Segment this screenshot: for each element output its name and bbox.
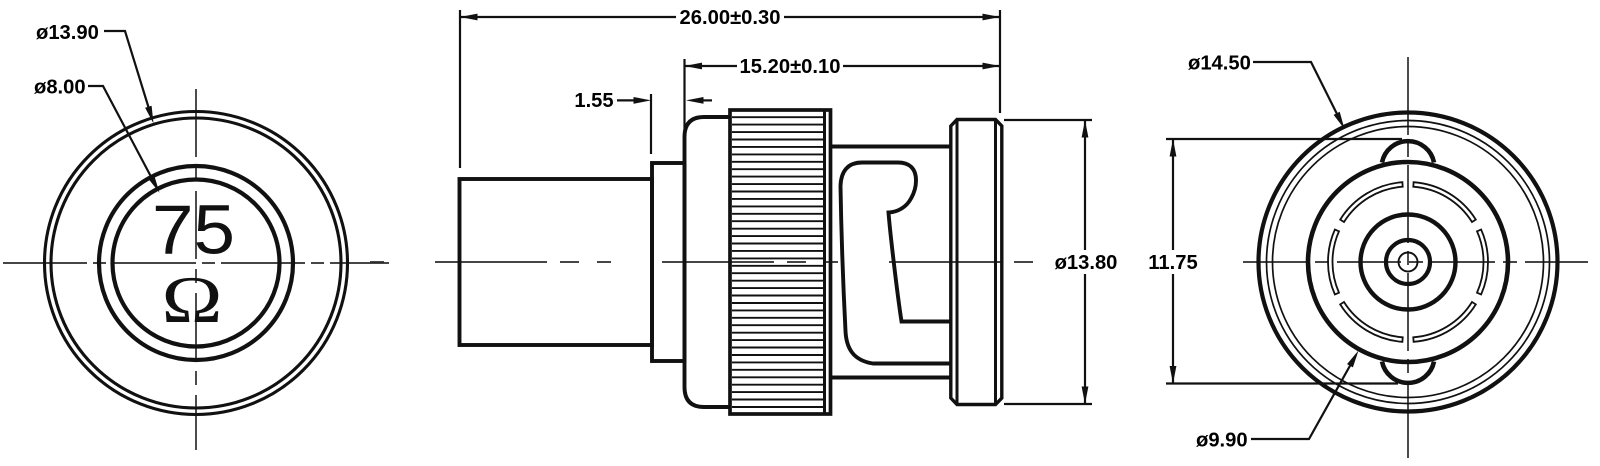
svg-text:ø14.50: ø14.50 — [1188, 53, 1251, 75]
svg-text:75: 75 — [152, 191, 235, 269]
svg-text:Ω: Ω — [162, 263, 223, 337]
svg-text:ø13.90: ø13.90 — [36, 22, 99, 44]
svg-text:ø9.90: ø9.90 — [1196, 430, 1248, 452]
svg-text:ø8.00: ø8.00 — [34, 77, 86, 99]
svg-text:ø13.80: ø13.80 — [1055, 252, 1118, 274]
svg-text:11.75: 11.75 — [1148, 252, 1197, 274]
svg-text:15.20±0.10: 15.20±0.10 — [740, 56, 841, 78]
svg-text:26.00±0.30: 26.00±0.30 — [680, 7, 781, 29]
svg-text:1.55: 1.55 — [574, 90, 613, 112]
